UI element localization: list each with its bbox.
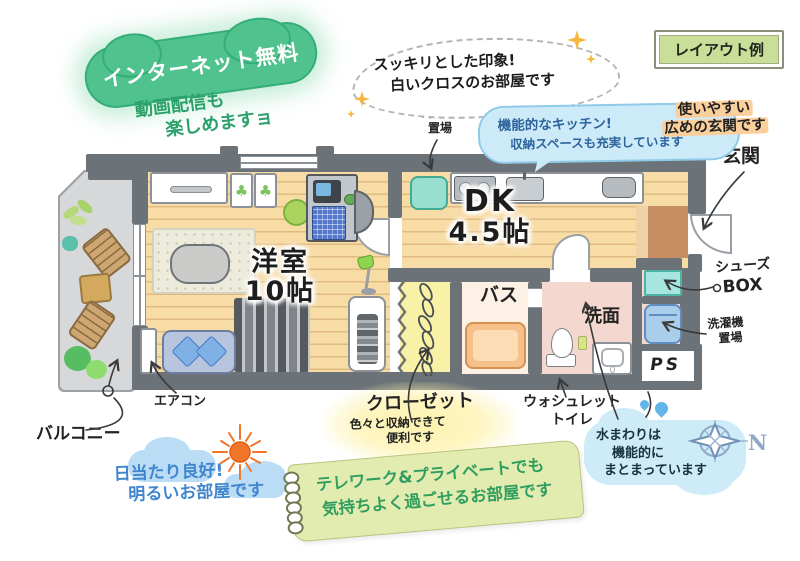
water-area-note: 水まわりは 機能的に まとまっています (584, 420, 746, 485)
air-conditioner (140, 328, 157, 374)
bath-door (528, 288, 542, 308)
floorplan-canvas: PS ♣ ♣ (0, 0, 800, 561)
faucet-icon (523, 172, 526, 180)
cabinet: ♣ (254, 173, 277, 208)
ps-label: PS (649, 355, 683, 376)
entrance-step (636, 206, 648, 258)
sunlight-note: 日当たり良好! 明るいお部屋です (113, 459, 264, 507)
telework-note-text: テレワーク&プライベートでも 気持ちよく過ごせるお部屋です (315, 453, 553, 523)
laptop-icon (312, 206, 346, 240)
closet-hangers (396, 280, 454, 376)
sofa (162, 330, 236, 374)
cabinet: ♣ (230, 173, 253, 208)
window (133, 224, 146, 326)
wall (642, 296, 682, 304)
balcony-label: バルコニー (36, 424, 121, 445)
window (240, 156, 318, 169)
entrance-door-arc (690, 214, 732, 254)
washroom-label: 洗面 (584, 306, 620, 329)
monitor-icon (313, 180, 341, 203)
counter-basin (602, 177, 636, 198)
layout-example-badge: レイアウト例 (654, 30, 784, 69)
desk (306, 174, 358, 242)
wall-stub (316, 146, 334, 172)
hanger-icon (416, 282, 435, 376)
toilet-bowl (551, 328, 573, 358)
entrance-note: 使いやすい 広めの玄関です (661, 98, 768, 138)
wall (132, 154, 148, 224)
bed (348, 296, 386, 372)
bathtub (465, 322, 526, 369)
tv-board (150, 172, 228, 204)
wall-stub (220, 146, 238, 172)
bath-label: バス (480, 284, 518, 308)
spiral-binding (287, 521, 304, 535)
compass-n-label: N (748, 430, 767, 455)
balcony-table (79, 272, 113, 304)
lamp-base (361, 288, 376, 295)
wall (688, 154, 706, 214)
entrance-floor (648, 206, 688, 258)
wall (636, 258, 682, 270)
water-drop-icon (638, 398, 651, 411)
plant-icon (62, 236, 78, 251)
shoes-box-label: シューズBOX (715, 256, 773, 299)
closet-note-title: クローゼット (366, 390, 475, 416)
dk-label: DK 4.5帖 (420, 186, 560, 248)
striped-rug (234, 298, 310, 372)
closet-note: 色々と収納できて便利です (350, 414, 447, 447)
layout-example-text: レイアウト例 (659, 35, 779, 64)
wall (388, 170, 402, 218)
aircon-label: エアコン (154, 394, 206, 410)
living-room-label: 洋室 10帖 (218, 248, 342, 306)
toilet-side-item (578, 336, 587, 350)
water-drop-icon (652, 399, 670, 417)
washing-machine-space (644, 304, 682, 344)
shoes-box (644, 270, 682, 296)
plant-icon (86, 360, 107, 379)
washer-label: 洗濯機置場 (707, 315, 745, 347)
washbasin (592, 342, 632, 375)
